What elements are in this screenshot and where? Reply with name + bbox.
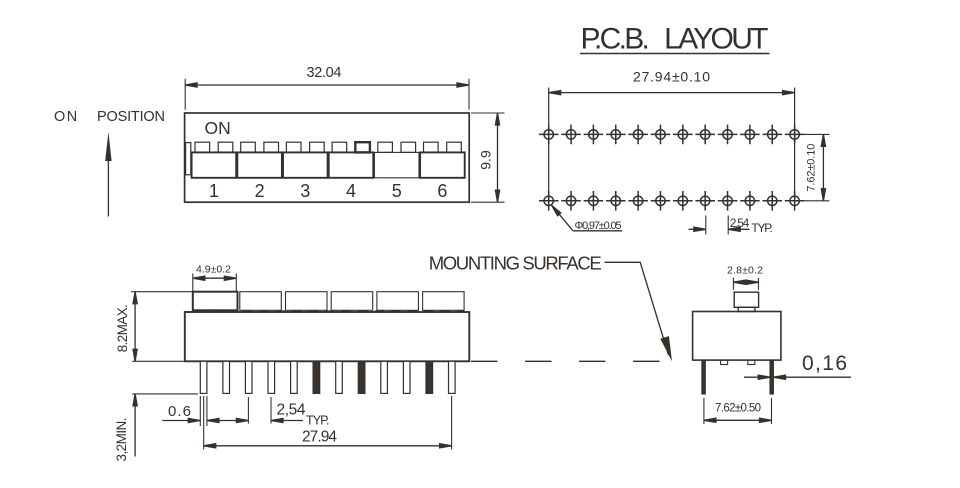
svg-text:ON: ON [54, 109, 79, 125]
svg-text:5: 5 [392, 181, 402, 201]
svg-text:3: 3 [300, 181, 310, 201]
svg-text:P.C.B. LAYOUT: P.C.B. LAYOUT [581, 23, 769, 56]
svg-text:2,54: 2,54 [277, 402, 306, 419]
svg-text:9.9: 9.9 [478, 150, 494, 170]
svg-text:MOUNTING SURFACE: MOUNTING SURFACE [429, 253, 602, 274]
svg-text:0.6: 0.6 [168, 403, 191, 420]
svg-text:27.94±0.10: 27.94±0.10 [633, 69, 710, 85]
svg-text:POSITION: POSITION [97, 109, 165, 125]
svg-text:TYP.: TYP. [751, 221, 773, 235]
svg-text:Φ0,97±0.05: Φ0,97±0.05 [575, 220, 622, 232]
svg-text:2: 2 [255, 181, 265, 201]
svg-text:27.94: 27.94 [302, 429, 337, 446]
svg-text:32.04: 32.04 [307, 65, 342, 81]
svg-text:ON: ON [205, 118, 231, 138]
svg-text:4: 4 [346, 181, 356, 201]
svg-text:6: 6 [437, 181, 447, 201]
svg-text:2.8±0.2: 2.8±0.2 [727, 265, 763, 277]
svg-text:4.9±0.2: 4.9±0.2 [196, 264, 231, 276]
svg-text:7.62±0.10: 7.62±0.10 [806, 144, 818, 192]
svg-text:7.62±0.50: 7.62±0.50 [715, 403, 761, 415]
svg-text:0,16: 0,16 [802, 352, 847, 375]
svg-text:2,54: 2,54 [730, 216, 750, 230]
svg-text:TYP.: TYP. [306, 414, 330, 428]
svg-text:3,2MIN.: 3,2MIN. [114, 418, 129, 462]
svg-text:1: 1 [209, 181, 219, 201]
svg-text:8.2MAX.: 8.2MAX. [115, 304, 130, 352]
